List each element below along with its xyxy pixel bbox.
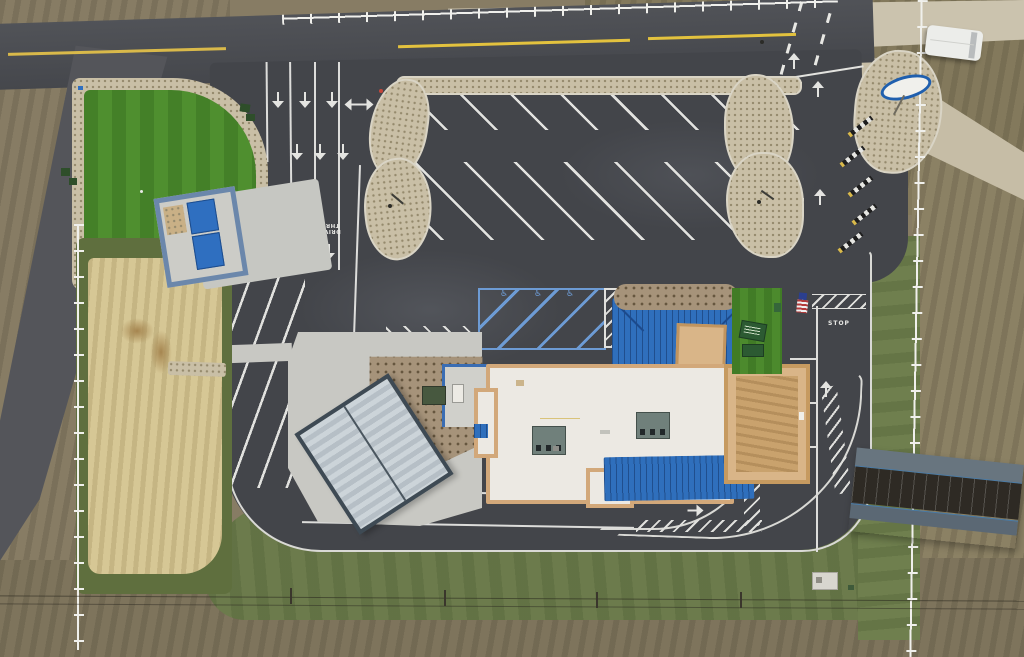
- light-pole-4: [760, 40, 764, 44]
- queue-spot-line-1: [790, 358, 816, 360]
- equipment-box-1: [239, 103, 250, 112]
- equipment-box-3: [61, 168, 70, 176]
- dumpster-enclosure: [153, 186, 248, 288]
- equipment-box-2: [246, 114, 255, 121]
- power-pole-4: [740, 592, 742, 608]
- hvac-unit-2: [636, 412, 670, 439]
- valve-box: [848, 585, 854, 590]
- mulch-bed-north: [614, 284, 738, 310]
- roof-debris-2: [553, 446, 559, 451]
- utility-box: [816, 577, 822, 583]
- hvac-unit-1: [532, 426, 566, 455]
- dumpster-2: [192, 232, 225, 270]
- hvac-fans: [640, 429, 666, 435]
- pavement-arrow-down-3: [326, 92, 338, 109]
- straw-stain-1: [120, 318, 154, 344]
- wheelchair-symbol-2: ♿: [534, 289, 542, 299]
- utility-cabinet: [452, 384, 464, 403]
- roof-pipe-line: [540, 418, 580, 419]
- crosswalk-north: [812, 294, 866, 309]
- canopy-ridge-beam: [344, 406, 407, 501]
- pavement-arrow-right-south2: [688, 505, 705, 517]
- stop-marking: STOP: [824, 320, 854, 327]
- menu-board-lines: [744, 325, 761, 335]
- pavement-arrow-down-6: [337, 144, 349, 161]
- menu-board-2: [742, 344, 764, 357]
- pavement-arrow-up-road: [788, 52, 800, 69]
- transformer: [422, 386, 446, 405]
- wheelchair-symbol-1: ♿: [500, 289, 508, 299]
- construction-entrance: [168, 361, 226, 377]
- pavement-arrow-turn-road: [812, 80, 824, 97]
- pavement-arrow-fork-right: [358, 99, 375, 111]
- pavement-arrow-down-4: [291, 144, 303, 161]
- roof-blue-west: [474, 424, 488, 438]
- flag-stripes: [796, 299, 808, 313]
- rail-fence-west: [74, 224, 84, 650]
- power-pole-1: [290, 588, 292, 604]
- canopy-panel: [736, 376, 798, 472]
- canopy-door: [799, 412, 804, 420]
- green-hole-1: [140, 190, 143, 193]
- roof-debris-1: [516, 380, 524, 386]
- roof-debris-3: [600, 430, 610, 434]
- equipment-box-4: [69, 178, 77, 185]
- drive-thru-canopy: [724, 364, 810, 484]
- tee-marker: [78, 86, 83, 90]
- straw-area: [88, 258, 222, 574]
- van-roof-seam: [930, 39, 974, 45]
- building-parapet-jog: [474, 388, 498, 458]
- clearance-sign: [774, 303, 781, 312]
- utility-pad: [812, 572, 838, 590]
- aerial-photo: DRIVE THRU DRIVE THRU ♿ ♿ ♿ STOP 1 2: [0, 0, 1024, 657]
- mulch-bin: [163, 204, 187, 235]
- power-pole-3: [596, 592, 598, 608]
- pavement-arrow-down-1: [272, 92, 284, 109]
- dumpster-1: [186, 198, 219, 234]
- us-flag: [796, 291, 812, 316]
- walkway-west: [230, 343, 293, 363]
- entrance-lane-line-4: [338, 62, 340, 270]
- light-pole-2: [757, 200, 761, 204]
- pavement-arrow-up-exit: [814, 188, 826, 205]
- wheelchair-symbol-3: ♿: [566, 289, 574, 299]
- traffic-cone: [379, 89, 383, 93]
- light-pole-1: [388, 204, 392, 208]
- ramp-structure: [848, 447, 1024, 548]
- pavement-arrow-down-5: [314, 144, 326, 161]
- power-pole-2: [444, 590, 446, 606]
- pavement-arrow-down-2: [299, 92, 311, 109]
